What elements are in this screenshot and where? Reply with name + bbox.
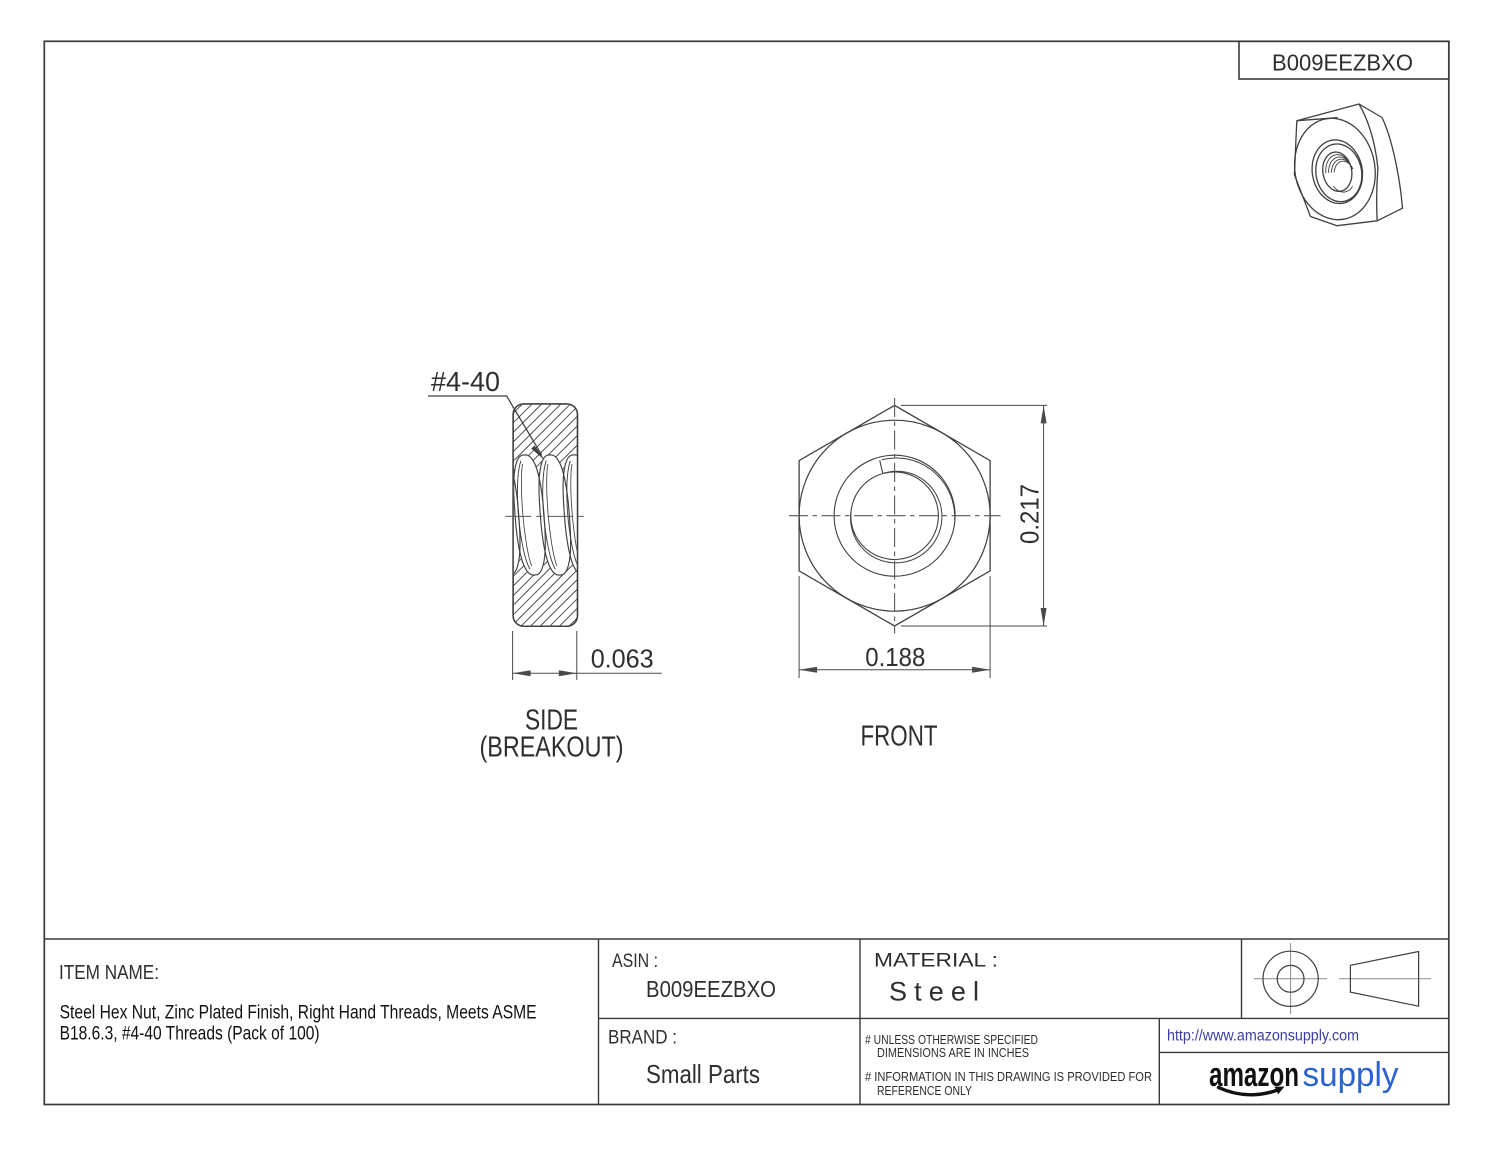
svg-text:FRONT: FRONT	[861, 721, 938, 753]
svg-text:Steel Hex Nut, Zinc Plated Fin: Steel Hex Nut, Zinc Plated Finish, Right…	[60, 1003, 537, 1024]
svg-text:0.188: 0.188	[865, 642, 925, 672]
svg-text:0.063: 0.063	[591, 644, 654, 674]
svg-text:B18.6.3, #4-40 Threads (Pack o: B18.6.3, #4-40 Threads (Pack of 100)	[60, 1024, 320, 1045]
svg-text:ITEM NAME:: ITEM NAME:	[59, 962, 159, 984]
svg-text:B009EEZBXO: B009EEZBXO	[646, 976, 776, 1002]
svg-text:http://www.amazonsupply.com: http://www.amazonsupply.com	[1167, 1028, 1359, 1045]
svg-text:Steel: Steel	[889, 977, 979, 1007]
svg-text:MATERIAL :: MATERIAL :	[874, 951, 998, 972]
svg-text:Small Parts: Small Parts	[646, 1059, 760, 1089]
svg-text:# INFORMATION IN THIS DRAWING: # INFORMATION IN THIS DRAWING IS PROVIDE…	[865, 1069, 1152, 1084]
svg-text:0.217: 0.217	[1015, 484, 1045, 544]
svg-text:(BREAKOUT): (BREAKOUT)	[480, 732, 624, 764]
svg-text:BRAND :: BRAND :	[608, 1028, 677, 1049]
svg-text:supply: supply	[1303, 1056, 1399, 1094]
svg-text:REFERENCE ONLY: REFERENCE ONLY	[877, 1083, 972, 1098]
svg-text:ASIN :: ASIN :	[612, 951, 658, 972]
svg-text:#4-40: #4-40	[431, 366, 500, 397]
svg-text:B009EEZBXO: B009EEZBXO	[1272, 50, 1413, 76]
svg-text:DIMENSIONS ARE IN INCHES: DIMENSIONS ARE IN INCHES	[877, 1045, 1029, 1060]
